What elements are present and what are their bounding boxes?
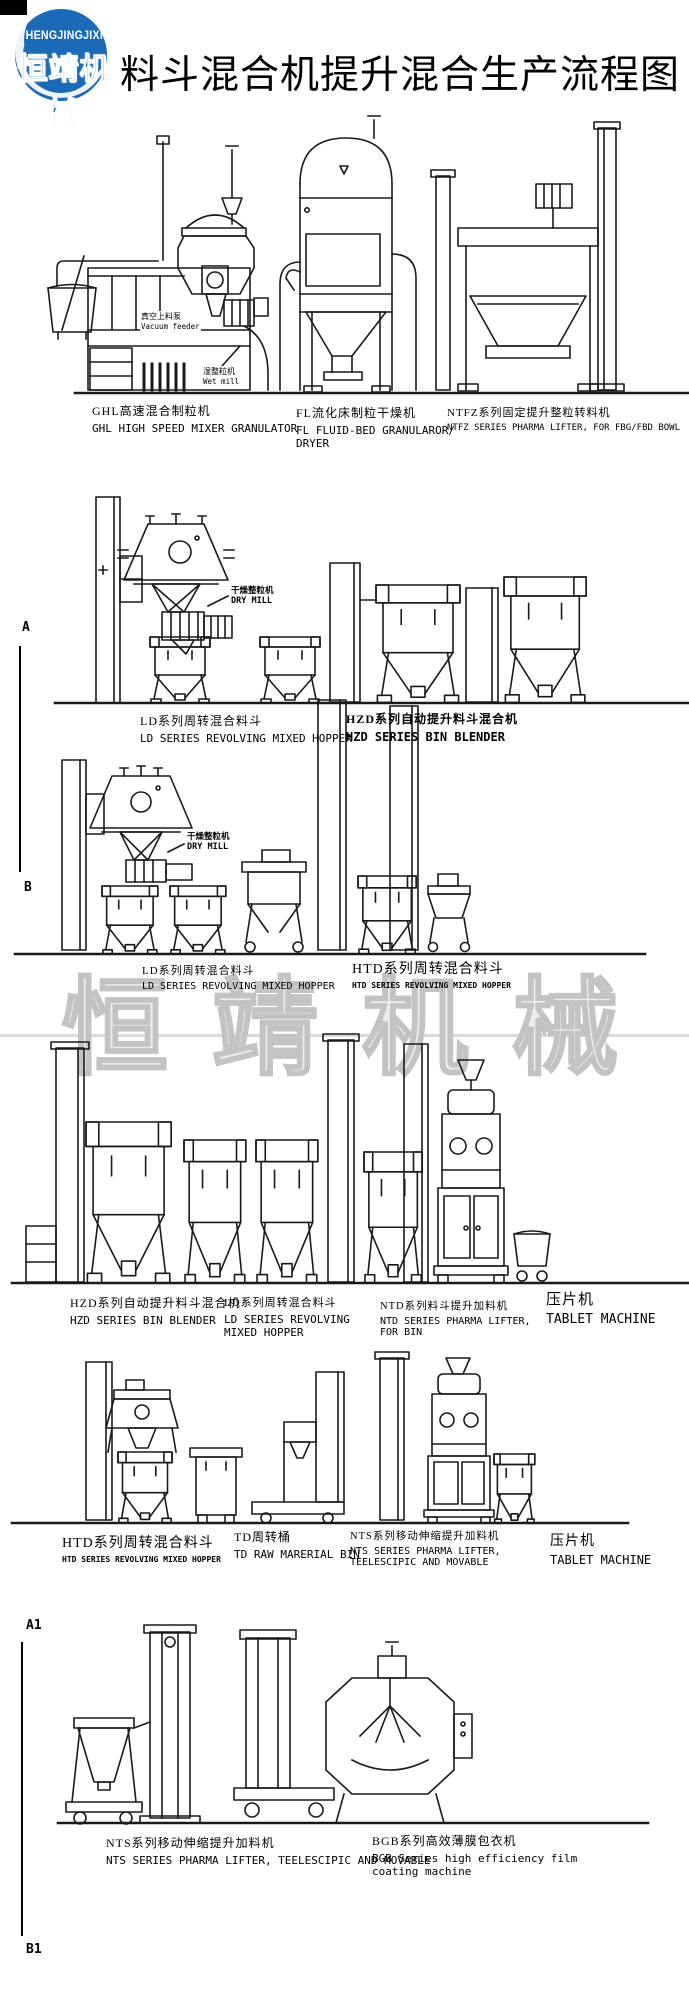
caption-en: LD SERIES REVOLVING MIXED HOPPER [140, 732, 352, 745]
marker-a1: A1 [26, 1618, 42, 1633]
caption-cn: LD系列周转混合料斗 [142, 962, 335, 978]
caption-tablet-machine-r4: 压片机 TABLET MACHINE [546, 1288, 656, 1327]
caption-cn: 压片机 [546, 1288, 656, 1309]
caption-bgb-coater: BGB系列高效薄膜包衣机 BGB Series high efficiency … [372, 1832, 587, 1878]
caption-en: LD SERIES REVOLVING MIXED HOPPER [224, 1313, 356, 1339]
caption-cn: 压片机 [550, 1530, 651, 1550]
caption-hzd-blender-r4: HZD系列自动提升料斗混合机 HZD SERIES BIN BLENDER [70, 1294, 241, 1327]
caption-ld-hopper-r3: LD系列周转混合料斗 LD SERIES REVOLVING MIXED HOP… [142, 962, 335, 992]
caption-htd-hopper-r3: HTD系列周转混合料斗 HTD SERIES REVOLVING MIXED H… [352, 958, 511, 990]
caption-en: TABLET MACHINE [550, 1553, 651, 1567]
caption-cn: HZD系列自动提升料斗混合机 [346, 710, 518, 727]
vacuum-feeder-label-cn: 真空上料泵 [141, 311, 200, 322]
caption-ghl-granulator: GHL高速混合制粒机 GHL HIGH SPEED MIXER GRANULAT… [92, 402, 297, 435]
caption-ntfz-lifter: NTFZ系列固定提升整粒转料机 NTFZ SERIES PHARMA LIFTE… [447, 404, 680, 433]
caption-tablet-machine-r5: 压片机 TABLET MACHINE [550, 1530, 651, 1567]
dry-mill-label-r3: 干燥整粒机 DRY MILL [186, 830, 231, 852]
caption-en: FL FLUID-BED GRANULAROR/ DRYER [296, 424, 466, 450]
wet-mill-label-en: Wet mill [203, 377, 239, 386]
caption-fl-dryer: FL流化床制粒干燥机 FL FLUID-BED GRANULAROR/ DRYE… [296, 404, 466, 450]
caption-en: LD SERIES REVOLVING MIXED HOPPER [142, 981, 335, 992]
caption-cn: HZD系列自动提升料斗混合机 [70, 1294, 241, 1311]
wet-mill-label: 湿整粒机 Wet mill [202, 366, 240, 386]
bgb-film-coating-machine-drawing [326, 1642, 472, 1823]
dry-mill-label-cn: 干燥整粒机 [187, 830, 230, 842]
caption-cn: HTD系列周转混合料斗 [352, 958, 511, 978]
dry-mill-label-cn: 干燥整粒机 [231, 584, 274, 596]
caption-cn: LD系列周转混合料斗 [140, 712, 352, 729]
flow-chart-page: HENGJINGJIXIE 恒靖机械 料斗混合机提升混合生产流程图 恒靖机械 [0, 0, 689, 2000]
caption-en: HZD SERIES BIN BLENDER [346, 730, 518, 744]
caption-ntd-lifter: NTD系列料斗提升加料机 NTD SERIES PHARMA LIFTER, F… [380, 1298, 538, 1338]
caption-cn: GHL高速混合制粒机 [92, 402, 297, 419]
tablet-machine-drawing-r5 [424, 1358, 535, 1523]
caption-en: TABLET MACHINE [546, 1312, 656, 1327]
diagram-art [0, 0, 689, 2000]
tablet-machine-drawing-r4 [434, 1060, 550, 1283]
ld-lifter-hopper-drawing-r2 [96, 497, 320, 703]
caption-htd-hopper-r5: HTD系列周转混合料斗 HTD SERIES REVOLVING MIXED H… [62, 1532, 221, 1564]
vacuum-feeder-label-en: Vacuum feeder [141, 322, 200, 331]
caption-cn: NTFZ系列固定提升整粒转料机 [447, 404, 680, 420]
caption-cn: BGB系列高效薄膜包衣机 [372, 1832, 587, 1849]
caption-en: HTD SERIES REVOLVING MIXED HOPPER [62, 1555, 221, 1564]
hzd-bin-blender-drawing-r4 [26, 1042, 171, 1283]
caption-en: HTD SERIES REVOLVING MIXED HOPPER [352, 981, 511, 990]
caption-cn: NTS系列移动伸缩提升加料机 [350, 1528, 520, 1543]
caption-td-bin: TD周转桶 TD RAW MARERIAL BIN [234, 1528, 360, 1561]
caption-cn: FL流化床制粒干燥机 [296, 404, 466, 421]
ld-bins-drawing-r4 [184, 1140, 318, 1283]
ghl-high-speed-mixer-granulator-drawing [48, 136, 268, 390]
caption-cn: LD系列周转混合料斗 [224, 1294, 356, 1310]
marker-a: A [22, 620, 30, 635]
vacuum-feeder-label: 真空上料泵 Vacuum feeder [140, 311, 201, 331]
marker-b: B [24, 880, 32, 895]
wet-mill-label-cn: 湿整粒机 [203, 366, 239, 377]
caption-en: HZD SERIES BIN BLENDER [70, 1314, 241, 1327]
caption-en: BGB Series high efficiency film coating … [372, 1852, 587, 1878]
caption-en: GHL HIGH SPEED MIXER GRANULATOR [92, 422, 297, 435]
fl-fluid-bed-dryer-drawing [280, 116, 416, 392]
marker-line-a1-b1 [21, 1642, 23, 1936]
caption-ld-hopper-r2: LD系列周转混合料斗 LD SERIES REVOLVING MIXED HOP… [140, 712, 352, 745]
dry-mill-label-r2: 干燥整粒机 DRY MILL [230, 584, 275, 606]
ntd-lifter-drawing-r4 [323, 1034, 428, 1283]
caption-nts-lifter-r5: NTS系列移动伸缩提升加料机 NTS SERIES PHARMA LIFTER,… [350, 1528, 520, 1568]
nts-mobile-lifter-drawing-r6 [66, 1625, 334, 1824]
hzd-bin-blender-drawing-r2 [330, 563, 586, 702]
ntfz-pharma-lifter-drawing [431, 122, 624, 391]
caption-en: NTS SERIES PHARMA LIFTER, TEELESCIPIC AN… [350, 1546, 520, 1568]
caption-en: TD RAW MARERIAL BIN [234, 1548, 360, 1561]
caption-cn: NTD系列料斗提升加料机 [380, 1298, 538, 1313]
caption-en: NTFZ SERIES PHARMA LIFTER, FOR FBG/FBD B… [447, 423, 680, 433]
nts-lifter-drawing-r5 [252, 1352, 409, 1523]
dry-mill-label-en: DRY MILL [231, 596, 274, 606]
marker-b1: B1 [26, 1942, 42, 1957]
htd-hopper-drawing-r5 [86, 1362, 178, 1523]
ld-lifter-hopper-drawing-r3 [62, 760, 306, 954]
dry-mill-label-en: DRY MILL [187, 842, 230, 852]
td-raw-material-bin-drawing [190, 1448, 242, 1523]
caption-cn: HTD系列周转混合料斗 [62, 1532, 221, 1552]
caption-ld-hopper-r4: LD系列周转混合料斗 LD SERIES REVOLVING MIXED HOP… [224, 1294, 356, 1339]
marker-line-a-b [19, 646, 21, 872]
caption-hzd-blender-r2: HZD系列自动提升料斗混合机 HZD SERIES BIN BLENDER [346, 710, 518, 744]
caption-cn: TD周转桶 [234, 1528, 360, 1545]
caption-en: NTD SERIES PHARMA LIFTER, FOR BIN [380, 1316, 538, 1338]
